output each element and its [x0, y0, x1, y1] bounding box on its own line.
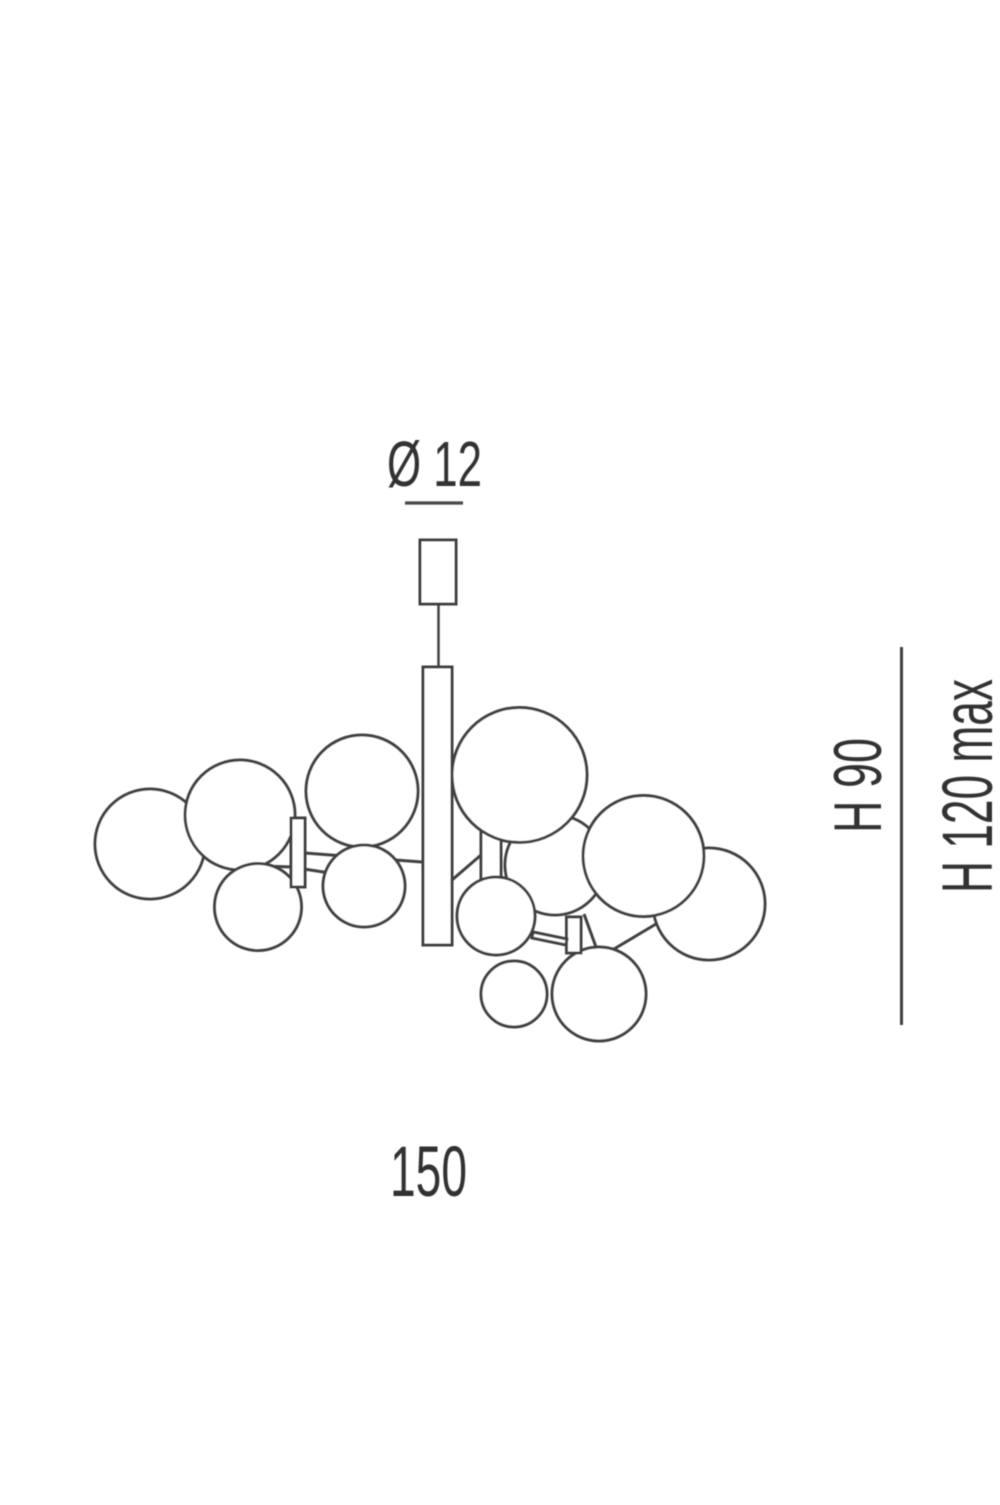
svg-text:150: 150	[390, 1133, 467, 1212]
svg-text:H 120 max: H 120 max	[929, 679, 1000, 893]
svg-text:H 90: H 90	[820, 738, 896, 833]
svg-text:Ø 12: Ø 12	[387, 428, 482, 500]
